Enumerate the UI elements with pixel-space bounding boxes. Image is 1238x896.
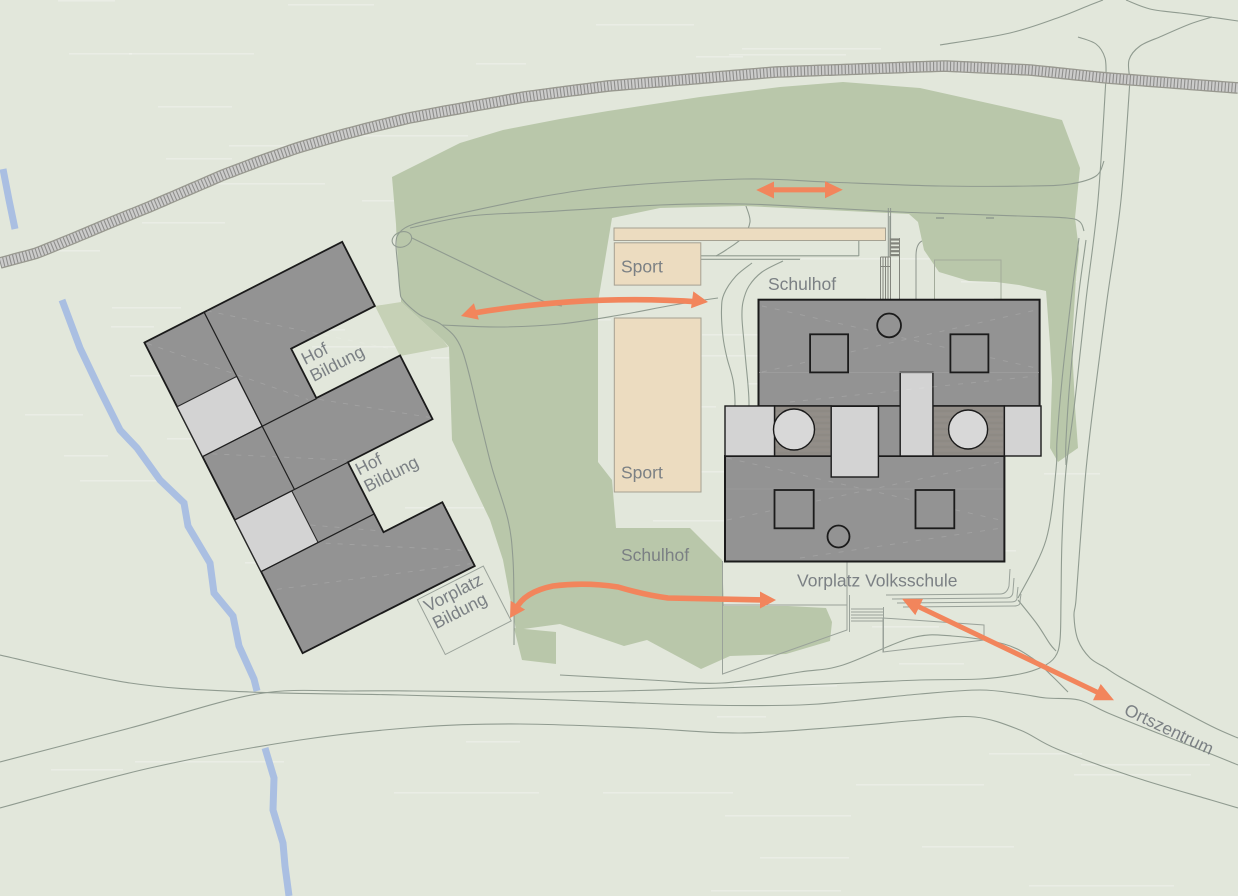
svg-text:Schulhof: Schulhof [621,545,689,565]
svg-text:Vorplatz Volksschule: Vorplatz Volksschule [797,571,958,591]
svg-text:Sport: Sport [621,463,663,483]
svg-text:Sport: Sport [621,257,663,277]
svg-text:Schulhof: Schulhof [768,274,836,294]
